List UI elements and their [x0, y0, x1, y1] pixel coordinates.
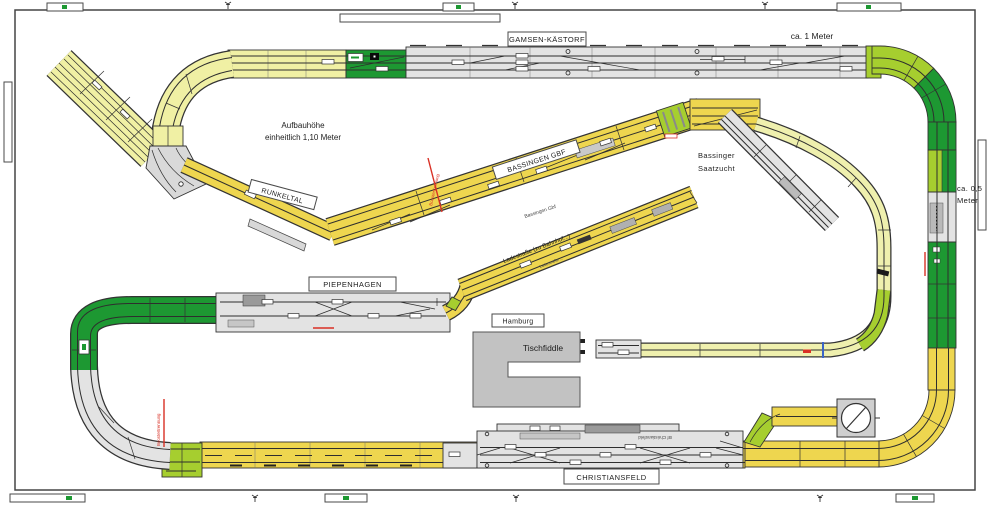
track-plan-svg: Bf Christiansfeld — [0, 0, 987, 508]
left-green-sign — [79, 340, 89, 354]
hamburg-label: Hamburg — [503, 319, 534, 326]
saatzucht-label-line2: Saatzucht — [698, 164, 735, 173]
christiansfeld-label: CHRISTIANSFELD — [576, 473, 646, 482]
booster-label-bottom: Boostertrennung — [156, 413, 161, 446]
red-track-marker — [803, 350, 811, 354]
aufbauhoehe-note-line2: einheitlich 1,10 Meter — [265, 133, 341, 142]
top-shelf-rect — [340, 14, 500, 22]
aufbauhoehe-note-line1: Aufbauhöhe — [281, 121, 325, 130]
gamsen-label: GAMSEN-KÄSTORF — [509, 35, 585, 44]
christiansfeld-station: Bf Christiansfeld — [477, 424, 743, 468]
ca-05-meter-note-line1: ca. 0,5 — [957, 184, 982, 193]
tischfiddle-label: Tischfiddle — [523, 343, 564, 353]
gamsen-kaestorf-station — [228, 46, 868, 79]
saatzucht-label-line1: Bassinger — [698, 151, 735, 160]
buffer-stop-mark — [665, 134, 677, 138]
right-vertical-section — [925, 122, 956, 390]
track-plan-canvas: Bf Christiansfeld — [0, 0, 987, 508]
piepenhagen-station — [216, 293, 450, 332]
piepenhagen-label: PIEPENHAGEN — [323, 280, 382, 289]
ca-1-meter-note: ca. 1 Meter — [791, 31, 834, 41]
ca-05-meter-note-line2: Meter — [957, 196, 978, 205]
gamsen-sign-white — [348, 54, 363, 62]
christiansfeld-small-label: Bf Christiansfeld — [638, 435, 672, 440]
turntable — [832, 399, 880, 437]
